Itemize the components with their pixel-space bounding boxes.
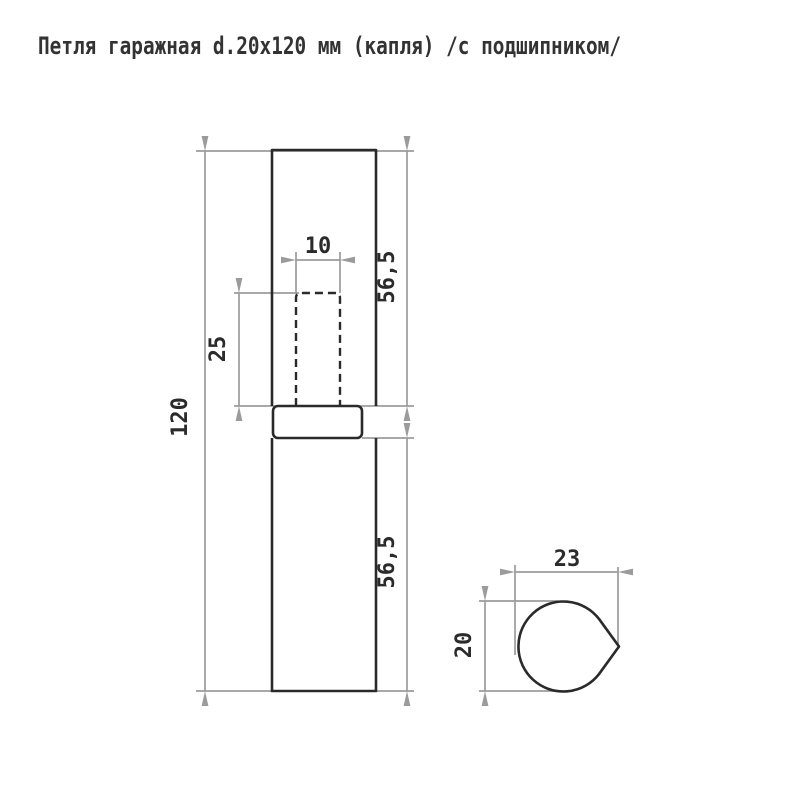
drawing-page: Петля гаражная d.20x120 мм (капля) /с по… bbox=[0, 0, 800, 800]
dim-label-section-height: 20 bbox=[452, 632, 477, 659]
teardrop-section-view bbox=[518, 602, 619, 692]
dim-label-pin-width: 10 bbox=[305, 234, 332, 259]
dim-label-pin-depth: 25 bbox=[206, 336, 231, 363]
dim-label-section-width: 23 bbox=[554, 547, 581, 572]
dim-label-lower-body: 56,5 bbox=[375, 536, 400, 589]
technical-drawing-canvas: Петля гаражная d.20x120 мм (капля) /с по… bbox=[0, 0, 800, 800]
bearing-knuckle-outline bbox=[273, 406, 362, 438]
lower-body-outline bbox=[272, 438, 376, 691]
dimension-labels: 120 56,5 56,5 25 10 23 20 bbox=[168, 234, 580, 658]
teardrop-profile-outline bbox=[518, 602, 619, 692]
upper-body-outline bbox=[272, 150, 376, 406]
hinge-front-view bbox=[272, 150, 376, 691]
dimension-lines bbox=[205, 151, 618, 691]
dim-label-upper-body: 56,5 bbox=[375, 251, 400, 304]
dim-label-total-length: 120 bbox=[168, 397, 193, 437]
hidden-pin-outline bbox=[296, 293, 340, 406]
drawing-title: Петля гаражная d.20x120 мм (капля) /с по… bbox=[38, 32, 621, 60]
